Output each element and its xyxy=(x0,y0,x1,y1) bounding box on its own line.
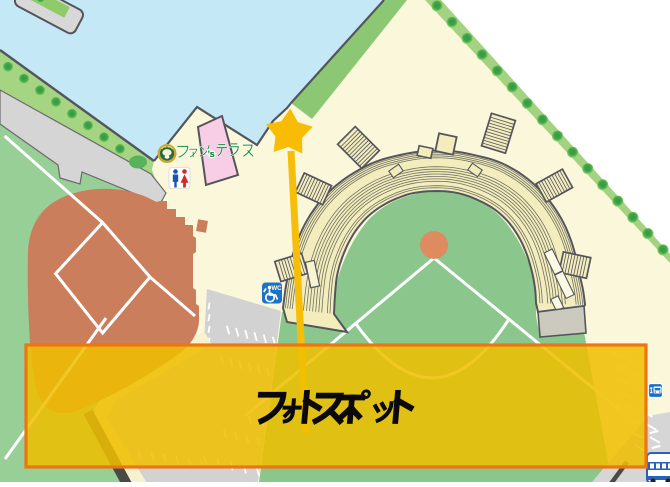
svg-text:’s: ’s xyxy=(208,149,215,159)
svg-text:WC: WC xyxy=(272,286,283,292)
